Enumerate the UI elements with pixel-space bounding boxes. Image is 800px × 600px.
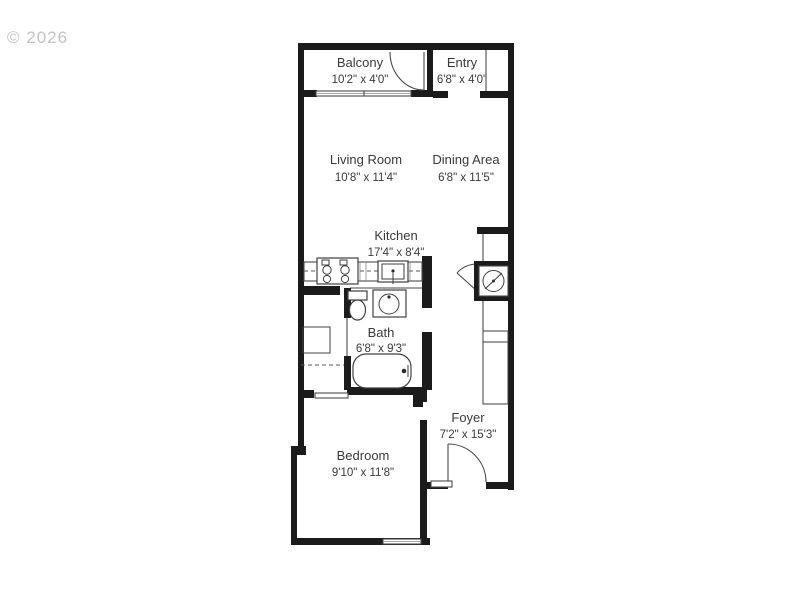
svg-text:Dining Area: Dining Area — [432, 152, 500, 167]
stove-icon — [317, 258, 358, 284]
bedroom-closet — [301, 327, 344, 365]
svg-text:Bath: Bath — [368, 325, 395, 340]
wall-balcony-sill-left — [304, 90, 317, 97]
wall-bath-right — [422, 332, 432, 390]
washer-closet — [474, 261, 514, 301]
svg-text:Foyer: Foyer — [451, 410, 485, 425]
svg-text:6'8" x 9'3": 6'8" x 9'3" — [356, 343, 406, 355]
bath-sink-icon — [373, 290, 406, 317]
toilet-icon — [348, 291, 367, 320]
wall-foyer-bottom-right — [486, 482, 514, 489]
floor-plan-page: © 2026 — [0, 0, 800, 600]
svg-text:Balcony: Balcony — [337, 55, 384, 70]
svg-text:Entry: Entry — [447, 55, 478, 70]
room-label-bath: Bath 6'8" x 9'3" — [356, 325, 406, 355]
room-label-kitchen: Kitchen 17'4" x 8'4" — [368, 228, 425, 259]
svg-text:Kitchen: Kitchen — [374, 228, 417, 243]
wall-bedroom-top-left — [298, 390, 314, 398]
bathtub-icon — [353, 354, 411, 388]
room-label-bedroom: Bedroom 9'10" x 11'8" — [332, 448, 394, 479]
svg-text:Bedroom: Bedroom — [337, 448, 390, 463]
svg-text:6'8" x 4'0": 6'8" x 4'0" — [437, 74, 487, 86]
wall-entry-bottom-left — [433, 91, 448, 98]
wall-left-upper — [298, 43, 304, 448]
wall-balcony-sill-right — [411, 90, 433, 97]
wall-counter-end — [422, 256, 432, 308]
closet-shelf-box — [303, 327, 330, 353]
svg-text:17'4" x 8'4": 17'4" x 8'4" — [368, 247, 425, 259]
wall-top — [298, 43, 514, 50]
door-swing-icon-entry — [431, 444, 486, 487]
room-label-dining-area: Dining Area 6'8" x 11'5" — [432, 152, 500, 184]
foyer-closets — [483, 234, 508, 404]
room-label-balcony: Balcony 10'2" x 4'0" — [332, 55, 389, 86]
kitchen-sink-icon — [378, 261, 408, 284]
window-icon-balcony — [316, 91, 411, 96]
svg-text:10'8" x 11'4": 10'8" x 11'4" — [335, 172, 397, 184]
svg-text:7'2" x 15'3": 7'2" x 15'3" — [440, 429, 497, 441]
room-label-entry: Entry 6'8" x 4'0" — [437, 55, 487, 86]
svg-text:Living Room: Living Room — [330, 152, 402, 167]
door-swing-icon-balcony — [390, 52, 424, 90]
kitchen-counter — [304, 258, 422, 284]
floor-plan-drawing: Balcony 10'2" x 4'0" Entry 6'8" x 4'0" L… — [0, 0, 800, 600]
wall-left-lower — [291, 446, 297, 545]
room-label-living-room: Living Room 10'8" x 11'4" — [330, 152, 402, 184]
svg-text:6'8" x 11'5": 6'8" x 11'5" — [438, 172, 494, 184]
wall-closet-bath-divider-lower — [344, 356, 351, 390]
entry-threshold — [431, 481, 452, 487]
svg-text:10'2" x 4'0": 10'2" x 4'0" — [332, 74, 389, 86]
wall-foyer-divider-top — [420, 387, 427, 402]
wall-entry-bottom-right — [480, 91, 508, 98]
sliding-door-icon-bedroom-closet — [315, 393, 348, 398]
svg-text:9'10" x 11'8": 9'10" x 11'8" — [332, 467, 394, 479]
wall-balcony-entry-divider — [427, 50, 433, 91]
wall-dining-foyer — [477, 227, 514, 234]
wall-closet-top — [298, 286, 340, 295]
window-icon-bedroom — [383, 539, 421, 544]
room-label-foyer: Foyer 7'2" x 15'3" — [440, 410, 497, 441]
